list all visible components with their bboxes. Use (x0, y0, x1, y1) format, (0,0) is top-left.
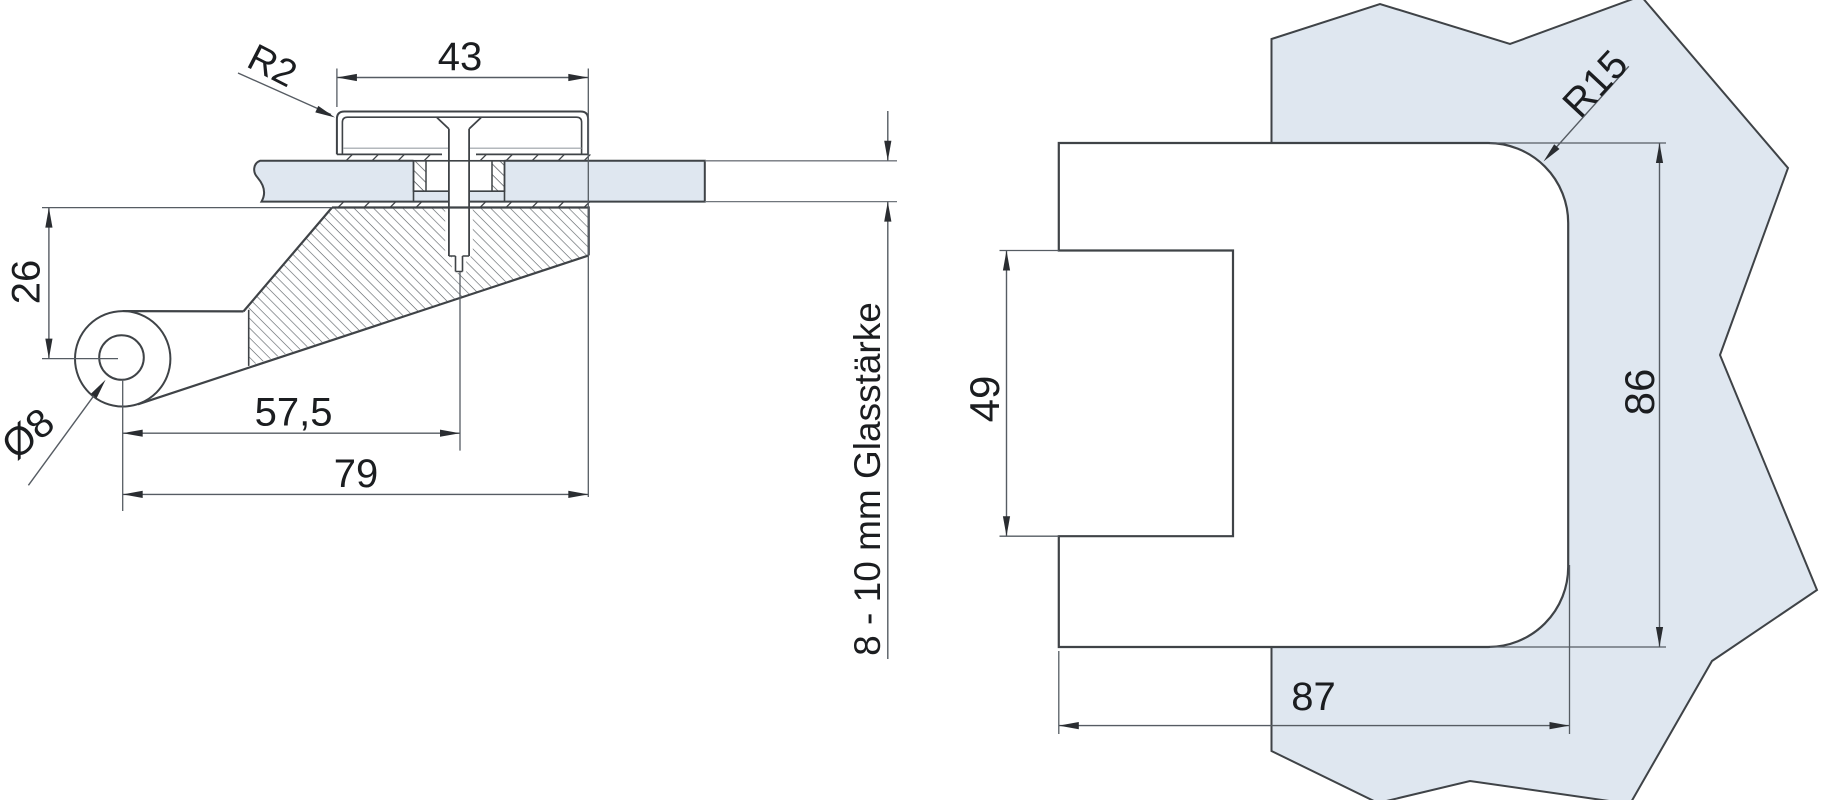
svg-text:79: 79 (334, 452, 379, 496)
svg-text:8 - 10 mm Glasstärke: 8 - 10 mm Glasstärke (847, 302, 888, 656)
svg-text:86: 86 (1616, 369, 1663, 416)
svg-text:87: 87 (1291, 675, 1336, 719)
svg-text:49: 49 (961, 376, 1008, 423)
svg-text:26: 26 (5, 260, 49, 305)
svg-text:R2: R2 (241, 37, 303, 96)
svg-text:43: 43 (438, 35, 483, 79)
svg-text:Ø8: Ø8 (0, 400, 63, 468)
svg-text:57,5: 57,5 (255, 391, 333, 435)
